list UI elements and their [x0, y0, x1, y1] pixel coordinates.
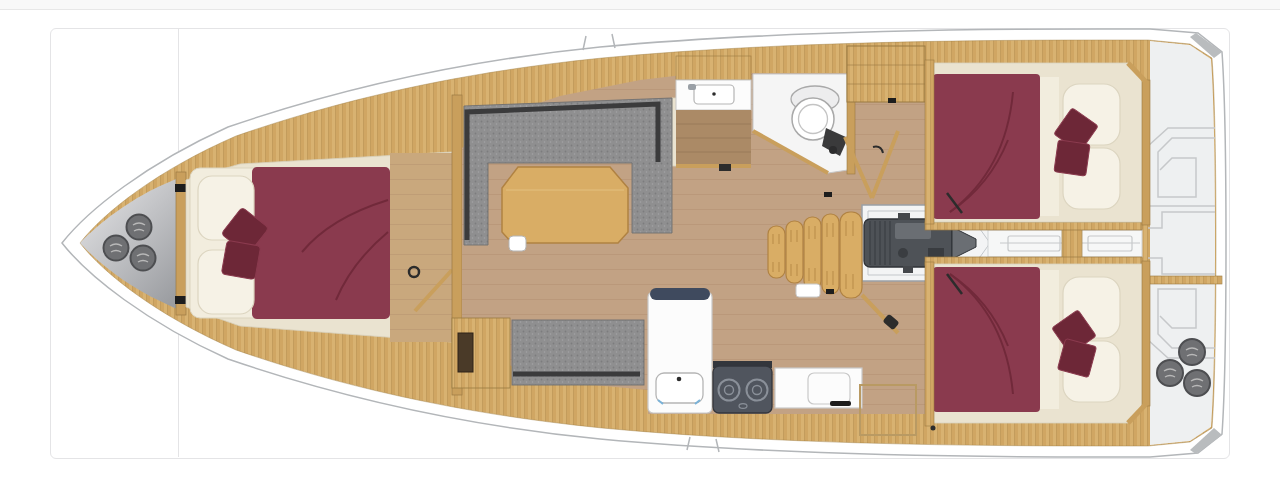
- galley-drain: [677, 377, 682, 382]
- bow-hatch: [104, 236, 129, 261]
- engine-fitting-bottom: [903, 266, 913, 273]
- head-faucet: [688, 84, 696, 90]
- forward-passage-floor: [390, 153, 452, 342]
- forward-berth-spread: [252, 167, 390, 319]
- step: [840, 212, 862, 298]
- cabinet-panel: [458, 333, 473, 372]
- channel-wall-top: [925, 222, 1142, 230]
- floor-plan-image[interactable]: [0, 0, 1280, 487]
- winch: [1157, 360, 1183, 386]
- head-upper-locker: [676, 56, 751, 80]
- step-base-box: [796, 284, 820, 297]
- channel-cross-beam: [1062, 226, 1082, 262]
- stern-area: [1145, 41, 1222, 445]
- aft-stbd-spread: [933, 267, 1040, 412]
- aft-port-right-wall: [1142, 80, 1150, 225]
- aft-stbd-right-wall: [1142, 261, 1150, 406]
- aft-stbd-left-wall: [925, 262, 934, 426]
- table-cup: [509, 236, 526, 251]
- stern-plank: [1145, 276, 1222, 284]
- engine-fitting-top: [898, 213, 910, 220]
- aft-cabin-starboard: [925, 261, 1150, 431]
- step: [804, 217, 821, 289]
- saloon-table: [502, 167, 628, 243]
- page: [0, 0, 1280, 487]
- bow-hatch: [127, 215, 152, 240]
- aft-stbd-latch: [931, 426, 936, 431]
- head-partition: [676, 164, 751, 168]
- galley-stove: [713, 366, 772, 413]
- galley-counter-cap: [650, 288, 710, 300]
- aft-port-left-wall: [925, 60, 934, 224]
- step: [768, 226, 785, 278]
- aft-stbd-sheet: [1040, 270, 1059, 409]
- head-door-latch: [719, 164, 731, 171]
- accent-cushion: [221, 240, 260, 279]
- aft-cabin-port: [925, 60, 1150, 225]
- engine-pulley: [898, 248, 908, 258]
- accent-cushion: [1054, 140, 1090, 176]
- bow-hatch: [131, 246, 156, 271]
- fixture-knob: [829, 146, 837, 154]
- counter-aft-accent: [830, 401, 851, 406]
- winch: [1184, 370, 1210, 396]
- bow-bulkhead: [176, 172, 186, 315]
- head-drain: [712, 92, 716, 96]
- aft-port-sheet: [1040, 77, 1059, 216]
- step: [786, 221, 803, 283]
- wardrobe: [847, 46, 925, 102]
- step: [822, 214, 839, 294]
- winch: [1179, 339, 1205, 365]
